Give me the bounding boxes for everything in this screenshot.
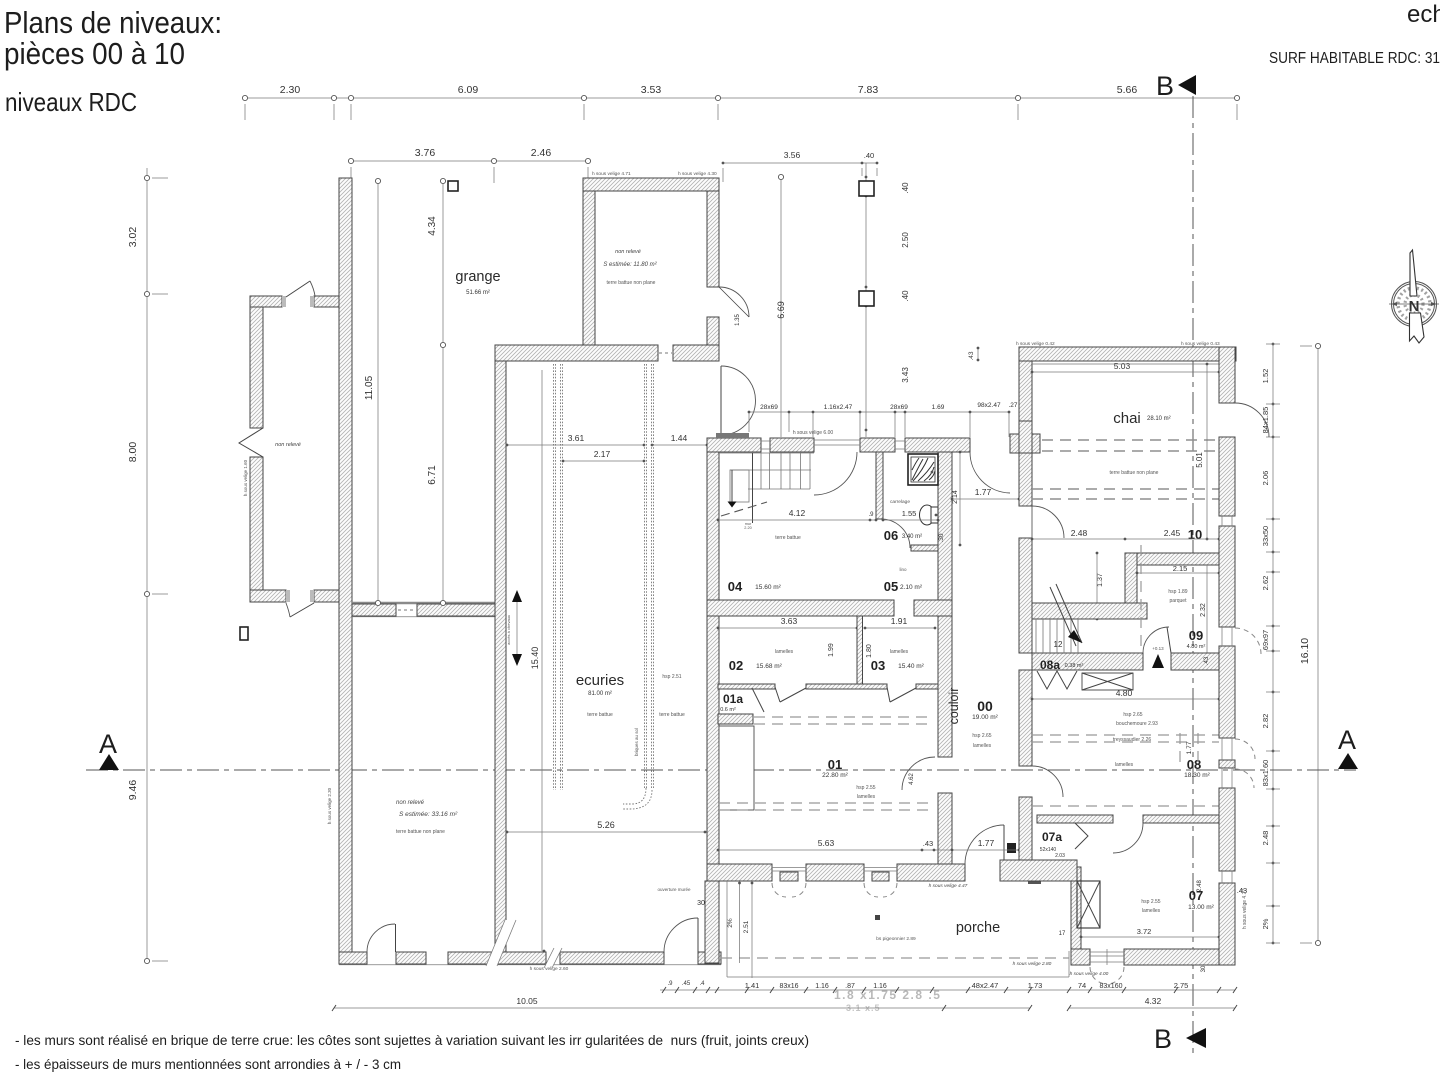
svg-text:2.45: 2.45	[1164, 528, 1181, 538]
svg-text:10.05: 10.05	[516, 996, 538, 1006]
svg-text:1.91: 1.91	[891, 616, 908, 626]
svg-text:00: 00	[977, 698, 993, 714]
svg-text:- les murs sont réalisé en bri: - les murs sont réalisé en brique de ter…	[15, 1033, 809, 1049]
svg-text:3.02: 3.02	[127, 227, 139, 248]
svg-text:S estimée: 11.80 m²: S estimée: 11.80 m²	[603, 262, 657, 268]
svg-text:3.56: 3.56	[784, 150, 801, 160]
svg-text:lamelles: lamelles	[857, 794, 876, 800]
svg-text:h sous velige 2.30: h sous velige 2.30	[327, 787, 332, 824]
svg-text:- les épaisseurs de murs menti: - les épaisseurs de murs mentionnées son…	[15, 1057, 401, 1073]
svg-text:06: 06	[884, 528, 898, 543]
svg-text:6.09: 6.09	[458, 84, 479, 96]
svg-text:2.48: 2.48	[1071, 528, 1088, 538]
svg-text:6.69: 6.69	[776, 301, 786, 319]
svg-text:5.66: 5.66	[1117, 84, 1138, 96]
svg-text:carrelage: carrelage	[890, 499, 910, 505]
svg-text:Plans de niveaux:: Plans de niveaux:	[4, 5, 222, 40]
svg-text:.43: .43	[1204, 656, 1210, 665]
svg-text:3.76: 3.76	[415, 147, 436, 159]
svg-text:bs pigeonnier 2.89: bs pigeonnier 2.89	[876, 936, 916, 942]
svg-text:0.38 m²: 0.38 m²	[1065, 663, 1084, 669]
svg-text:19.00 m²: 19.00 m²	[972, 714, 998, 721]
svg-text:1.80: 1.80	[866, 644, 873, 658]
svg-text:83x1.60: 83x1.60	[1261, 760, 1270, 787]
svg-text:h sous velige 4.00: h sous velige 4.00	[1070, 971, 1109, 977]
svg-text:1.16x2.47: 1.16x2.47	[824, 404, 853, 411]
svg-text:15.40 m²: 15.40 m²	[898, 663, 924, 670]
svg-text:ech: ech	[1407, 1, 1440, 28]
svg-text:13.00 m²: 13.00 m²	[1188, 904, 1214, 911]
svg-text:1.52: 1.52	[1261, 369, 1270, 384]
svg-text:05: 05	[884, 579, 898, 594]
svg-text:7.83: 7.83	[858, 84, 879, 96]
svg-text:non relevé: non relevé	[396, 800, 425, 806]
svg-text:3.43: 3.43	[901, 367, 910, 383]
svg-text:non relevé: non relevé	[275, 442, 301, 448]
svg-text:07a: 07a	[1042, 830, 1062, 844]
svg-text:02: 02	[729, 658, 743, 673]
svg-text:2.17: 2.17	[594, 449, 611, 459]
svg-text:.40: .40	[864, 151, 874, 160]
svg-text:.27: .27	[1008, 402, 1017, 409]
svg-text:h sous velige 2.60: h sous velige 2.60	[530, 966, 569, 972]
svg-text:1.77: 1.77	[978, 838, 995, 848]
svg-text:9.46: 9.46	[127, 780, 139, 801]
svg-text:+0.13: +0.13	[1152, 646, 1164, 651]
svg-text:69x97: 69x97	[1261, 630, 1270, 650]
svg-text:B: B	[1156, 71, 1174, 101]
svg-text:4.62: 4.62	[909, 773, 915, 785]
svg-text:2.30: 2.30	[280, 84, 301, 96]
svg-text:.43: .43	[923, 839, 933, 848]
svg-text:1.99: 1.99	[828, 643, 835, 657]
svg-text:2.48: 2.48	[1261, 831, 1270, 846]
svg-text:11.05: 11.05	[364, 375, 375, 400]
svg-text:niveaux RDC: niveaux RDC	[5, 87, 137, 117]
svg-text:porche: porche	[956, 920, 1000, 936]
svg-text:28.10 m²: 28.10 m²	[1147, 416, 1171, 422]
svg-text:ouverture murée: ouverture murée	[657, 887, 691, 892]
svg-text:30: 30	[697, 900, 705, 907]
svg-text:terre battue non plane: terre battue non plane	[607, 280, 656, 286]
svg-text:04: 04	[728, 579, 743, 594]
svg-text:lamelles: lamelles	[890, 649, 909, 655]
svg-text:08: 08	[1187, 757, 1201, 772]
svg-text:1.44: 1.44	[671, 433, 688, 443]
svg-text:08a: 08a	[1040, 658, 1060, 672]
svg-text:1.55: 1.55	[902, 509, 917, 518]
svg-text:01: 01	[828, 757, 842, 772]
svg-text:.45: .45	[682, 981, 691, 987]
svg-text:3.72: 3.72	[1137, 927, 1152, 936]
svg-text:15.40: 15.40	[530, 647, 540, 670]
svg-text:2%: 2%	[727, 918, 734, 928]
svg-text:.43: .43	[968, 351, 975, 360]
svg-text:hsp 2.65: hsp 2.65	[972, 733, 991, 739]
svg-text:briques au sol: briques au sol	[634, 728, 639, 756]
svg-text:81.00 m²: 81.00 m²	[588, 691, 612, 697]
svg-text:S estimée: 33.16 m²: S estimée: 33.16 m²	[399, 811, 458, 818]
svg-text:h sous velige 4.71: h sous velige 4.71	[592, 171, 631, 177]
svg-text:parquet: parquet	[1170, 598, 1188, 604]
svg-text:2.06: 2.06	[1261, 471, 1270, 486]
svg-text:.40: .40	[901, 290, 910, 302]
svg-text:2.32: 2.32	[1200, 603, 1207, 617]
svg-text:terre battue non plane: terre battue non plane	[1110, 470, 1159, 476]
svg-text:h sous velige 1.60: h sous velige 1.60	[243, 459, 248, 496]
svg-text:18.30 m²: 18.30 m²	[1184, 772, 1210, 779]
svg-text:terre battue: terre battue	[659, 712, 685, 718]
svg-text:N: N	[1409, 298, 1420, 315]
svg-text:28x69: 28x69	[890, 404, 908, 411]
svg-text:terre battue non plane: terre battue non plane	[396, 829, 445, 835]
svg-text:28x69: 28x69	[760, 404, 778, 411]
svg-text:15.68 m²: 15.68 m²	[756, 663, 782, 670]
svg-text:.9: .9	[667, 981, 673, 987]
svg-text:01a: 01a	[723, 692, 743, 706]
svg-text:SURF HABITABLE RDC: 31: SURF HABITABLE RDC: 31	[1269, 50, 1440, 67]
svg-text:09: 09	[1189, 628, 1203, 643]
svg-text:2%: 2%	[1261, 918, 1270, 929]
svg-text:ecuries: ecuries	[576, 672, 624, 689]
svg-text:terre battue: terre battue	[587, 712, 613, 718]
svg-text:2.48: 2.48	[1197, 880, 1203, 892]
svg-text:hsp 2.55: hsp 2.55	[1141, 899, 1160, 905]
svg-text:2.15: 2.15	[1173, 564, 1188, 573]
svg-text:.30: .30	[938, 533, 945, 542]
svg-text:couloir: couloir	[947, 688, 961, 725]
svg-text:98x2.47: 98x2.47	[977, 402, 1001, 409]
svg-text:1.69: 1.69	[932, 404, 945, 411]
svg-text:83x160: 83x160	[1100, 983, 1123, 990]
svg-text:5.01: 5.01	[1195, 452, 1204, 468]
svg-text:22.80 m²: 22.80 m²	[822, 772, 848, 779]
svg-text:1.41: 1.41	[745, 981, 760, 990]
svg-text:3.53: 3.53	[641, 84, 662, 96]
svg-text:12: 12	[1054, 640, 1063, 649]
svg-text:3.61: 3.61	[568, 433, 585, 443]
svg-text:0.6 m²: 0.6 m²	[720, 707, 736, 713]
svg-text:terre battue: terre battue	[775, 535, 801, 541]
svg-text:pièces 00 à 10: pièces 00 à 10	[4, 36, 185, 71]
svg-text:1.16: 1.16	[815, 983, 829, 990]
svg-text:2.50: 2.50	[901, 232, 910, 248]
svg-text:hsp 2.51: hsp 2.51	[662, 674, 681, 680]
svg-text:5.03: 5.03	[1114, 361, 1131, 371]
svg-text:accès à chevaux: accès à chevaux	[506, 615, 511, 645]
svg-text:2.20: 2.20	[744, 526, 751, 530]
svg-text:1.35: 1.35	[735, 314, 741, 326]
svg-text:hsp 2.65: hsp 2.65	[1123, 712, 1142, 718]
svg-text:lamelles: lamelles	[775, 649, 794, 655]
svg-text:5.63: 5.63	[818, 838, 835, 848]
svg-text:2.75: 2.75	[1174, 981, 1189, 990]
svg-text:48x2.47: 48x2.47	[972, 981, 999, 990]
svg-text:lamelles: lamelles	[1115, 762, 1134, 768]
svg-text:bouchemoure 2.93: bouchemoure 2.93	[1116, 721, 1158, 727]
svg-text:chai: chai	[1113, 410, 1141, 427]
svg-text:16.10: 16.10	[1299, 638, 1311, 664]
svg-text:1.77: 1.77	[1186, 741, 1193, 754]
svg-text:2.82: 2.82	[1261, 714, 1270, 729]
svg-text:non relevé: non relevé	[615, 249, 641, 255]
svg-text:lamelles: lamelles	[1142, 908, 1161, 914]
svg-text:4.32: 4.32	[1145, 996, 1162, 1006]
svg-text:h sous velige 0.42: h sous velige 0.42	[1016, 341, 1055, 347]
svg-text:.4: .4	[699, 981, 705, 987]
svg-text:hsp 2.55: hsp 2.55	[856, 785, 875, 791]
svg-text:h sous velige 4.47: h sous velige 4.47	[929, 883, 968, 889]
svg-text:grange: grange	[455, 269, 500, 285]
svg-text:lamelles: lamelles	[973, 743, 992, 749]
svg-text:4.34: 4.34	[427, 216, 438, 236]
svg-text:3.40 m²: 3.40 m²	[902, 534, 922, 540]
svg-text:52x140: 52x140	[1040, 847, 1057, 853]
svg-text:3.63: 3.63	[781, 616, 798, 626]
svg-text:A: A	[1338, 725, 1356, 755]
svg-text:10: 10	[1188, 527, 1202, 542]
svg-text:1.8 x1.75 2.8 .5: 1.8 x1.75 2.8 .5	[834, 988, 941, 1002]
svg-text:1.73: 1.73	[1028, 981, 1043, 990]
svg-text:h sous velige 4.30: h sous velige 4.30	[678, 171, 717, 177]
svg-text:51.66 m²: 51.66 m²	[466, 290, 490, 296]
svg-text:h sous velige 2.80: h sous velige 2.80	[1013, 961, 1052, 967]
svg-text:2.62: 2.62	[1261, 576, 1270, 591]
svg-text:h sous velige 0.43: h sous velige 0.43	[1181, 341, 1220, 347]
svg-text:83x16: 83x16	[779, 983, 798, 990]
svg-text:5.26: 5.26	[597, 820, 615, 830]
svg-text:1.37: 1.37	[1097, 573, 1104, 587]
svg-text:.40: .40	[901, 182, 910, 194]
svg-text:17: 17	[1059, 931, 1066, 937]
svg-text:.9: .9	[868, 512, 874, 518]
svg-text:2.51: 2.51	[743, 920, 750, 933]
svg-text:2.03: 2.03	[1055, 853, 1065, 859]
svg-text:4.80 m²: 4.80 m²	[1187, 644, 1206, 650]
svg-text:6.71: 6.71	[427, 465, 438, 485]
svg-text:2.10 m²: 2.10 m²	[900, 584, 923, 591]
svg-text:4.80: 4.80	[1116, 688, 1133, 698]
svg-text:30: 30	[1201, 965, 1207, 972]
svg-text:74: 74	[1078, 981, 1086, 990]
svg-text:B: B	[1154, 1024, 1172, 1054]
svg-text:A: A	[99, 729, 117, 759]
svg-text:2.14: 2.14	[952, 490, 959, 504]
svg-text:4.12: 4.12	[789, 508, 806, 518]
svg-text:1.77: 1.77	[975, 487, 992, 497]
svg-text:8.00: 8.00	[127, 442, 139, 463]
svg-text:h sous velige 4.77: h sous velige 4.77	[1242, 889, 1248, 930]
svg-text:hsp 1.89: hsp 1.89	[1168, 589, 1187, 595]
svg-text:03: 03	[871, 658, 885, 673]
svg-text:15.60 m²: 15.60 m²	[755, 584, 781, 591]
svg-text:lino: lino	[899, 567, 907, 572]
svg-text:2.46: 2.46	[531, 147, 552, 159]
svg-text:33x50: 33x50	[1261, 526, 1270, 546]
